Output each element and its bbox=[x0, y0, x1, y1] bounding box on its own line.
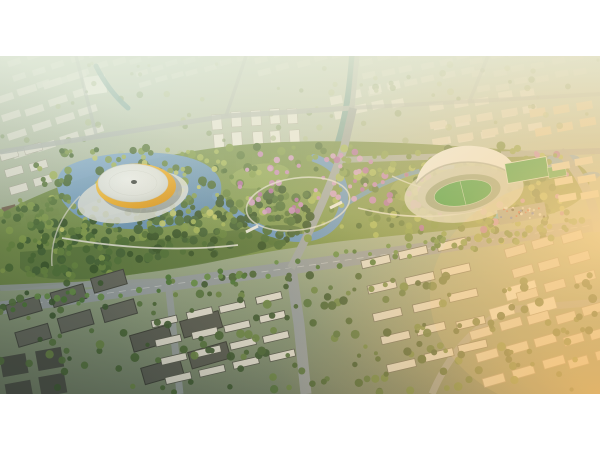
letterbox-top bbox=[0, 0, 600, 56]
layer-atmosphere bbox=[0, 56, 600, 394]
aerial-render-image bbox=[0, 56, 600, 394]
page-canvas bbox=[0, 0, 600, 450]
letterbox-bottom bbox=[0, 394, 600, 450]
render-root bbox=[0, 56, 600, 394]
